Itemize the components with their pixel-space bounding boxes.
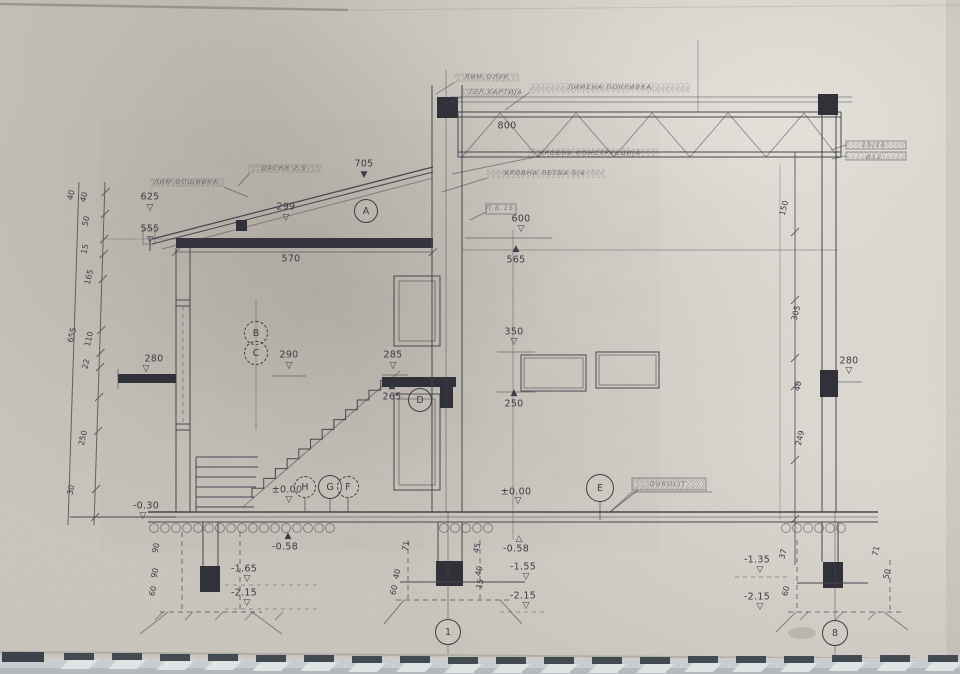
- blueprint-photo: 6255552997055708006005652802902852653502…: [0, 0, 960, 674]
- note-15-15: 15/15: [862, 141, 886, 149]
- level-625: 625: [140, 192, 159, 203]
- chain-dim: 30: [65, 484, 76, 496]
- level-marker: ▲: [389, 381, 396, 391]
- level-265: 265: [382, 392, 401, 403]
- grid-bubble-1: 1: [435, 619, 461, 645]
- chain-dim: 22: [80, 358, 91, 370]
- section-mark-a: A: [354, 199, 378, 223]
- level-m165: -1.65: [231, 564, 257, 575]
- chain-dim: 250: [77, 429, 89, 446]
- footing-dim: 90: [150, 542, 161, 554]
- section-mark-e: E: [586, 474, 614, 502]
- level-marker: ▽: [757, 602, 764, 612]
- note-gutter: ЛИМ.ОЛУК: [465, 73, 510, 81]
- chain-dim: 249: [794, 429, 806, 446]
- level-marker: ▽: [244, 598, 251, 608]
- level-marker: ▲: [285, 531, 292, 541]
- section-mark-h: H: [294, 476, 316, 498]
- footing-dim: 40: [473, 565, 484, 577]
- level-250: 250: [504, 399, 523, 410]
- grid-bubble-8: 8: [822, 620, 848, 646]
- note-flashing: ЛИМ.ОПШИВКА: [154, 178, 219, 186]
- level-m215-center: -2.15: [510, 591, 536, 602]
- label-layer: 6255552997055708006005652802902852653502…: [0, 0, 960, 674]
- level-marker: ▽: [390, 361, 397, 371]
- level-marker: ▽: [143, 364, 150, 374]
- note-durolit: DUROLIT: [650, 480, 687, 488]
- level-565: 565: [506, 255, 525, 266]
- chain-dim: 15: [79, 243, 90, 255]
- level-marker: ▽: [283, 213, 290, 223]
- level-m215-left: -2.15: [231, 588, 257, 599]
- level-marker: △: [516, 534, 523, 544]
- level-marker: ▽: [518, 224, 525, 234]
- level-285: 285: [383, 350, 402, 361]
- level-marker: ▲: [513, 244, 520, 254]
- chain-dim: 305: [790, 304, 802, 321]
- level-290: 290: [279, 350, 298, 361]
- dim-570: 570: [281, 254, 300, 265]
- level-350: 350: [504, 327, 523, 338]
- footing-dim: 60: [388, 584, 399, 596]
- footing-dim: 60: [780, 585, 791, 597]
- note-boards: ДАСКИ 2.5: [261, 164, 307, 172]
- section-mark-c: C: [244, 341, 268, 365]
- note-tarpaper: ТЕР.ХАРТИЈА: [469, 88, 523, 96]
- footing-dim: 90: [149, 567, 160, 579]
- level-m058-left: -0.58: [272, 542, 298, 553]
- level-555: 555: [140, 224, 159, 235]
- chain-dim: 40: [65, 189, 76, 201]
- level-marker: ▽: [515, 496, 522, 506]
- dim-299: 299: [276, 202, 295, 213]
- note-pb15: П.Б.15: [486, 204, 514, 212]
- chain-dim: 110: [83, 330, 95, 347]
- level-marker: ▽: [523, 601, 530, 611]
- level-m215-right: -2.15: [744, 592, 770, 603]
- footing-dim: 15: [474, 578, 485, 590]
- level-m135: -1.35: [744, 555, 770, 566]
- section-mark-d: D: [408, 388, 432, 412]
- chain-dim: 50: [80, 215, 91, 227]
- chain-dim: 150: [778, 199, 790, 216]
- level-marker: ▽: [846, 366, 853, 376]
- chain-dim: 655: [66, 326, 78, 343]
- level-marker: ▽: [286, 361, 293, 371]
- section-mark-f: F: [337, 476, 359, 498]
- level-marker: ▽: [286, 495, 293, 505]
- level-marker: ▽: [147, 235, 154, 245]
- footing-dim: 45: [471, 542, 482, 554]
- level-280-right: 280: [839, 356, 858, 367]
- footing-dim: 50: [881, 568, 892, 580]
- level-marker: ▽: [523, 572, 530, 582]
- note-o12: Ø12: [866, 153, 883, 161]
- footing-dim: 60: [147, 585, 158, 597]
- dim-800: 800: [497, 121, 516, 132]
- level-marker: ▽: [757, 565, 764, 575]
- note-sheet-roofing: ЛИМЕНА ПОКРИВКА: [568, 83, 652, 91]
- level-280-left: 280: [144, 354, 163, 365]
- chain-dim: 40: [78, 191, 89, 203]
- level-600: 600: [511, 214, 530, 225]
- footing-dim: 37: [777, 548, 788, 560]
- note-roof-structure: КРОВНА КОНСТРУКЦИЈА: [539, 149, 641, 157]
- level-marker: ▽: [511, 337, 518, 347]
- level-marker: ▼: [361, 170, 368, 180]
- level-705: 705: [354, 159, 373, 170]
- chain-dim: 40: [792, 380, 803, 392]
- chain-dim: 165: [83, 268, 95, 285]
- level-marker: ▽: [140, 511, 147, 521]
- level-m058-center: -0.58: [503, 544, 529, 555]
- level-marker: ▽: [147, 203, 154, 213]
- footing-dim: 71: [400, 540, 411, 552]
- footing-dim: 71: [870, 545, 881, 557]
- level-m030: -0.30: [133, 501, 159, 512]
- level-marker: ▽: [244, 574, 251, 584]
- level-m155: -1.55: [510, 562, 536, 573]
- level-marker: ▲: [511, 388, 518, 398]
- footing-dim: 40: [391, 568, 402, 580]
- note-roof-batten: КРОВНА ЛЕТВА 5/8: [504, 169, 586, 177]
